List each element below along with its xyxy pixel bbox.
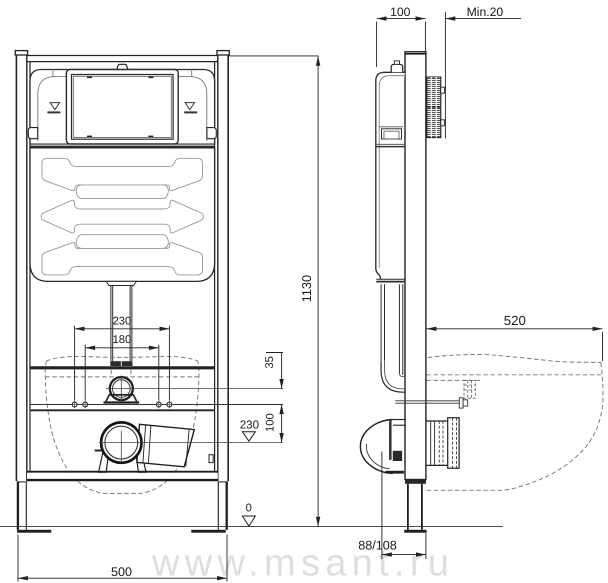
svg-text:230: 230 xyxy=(240,418,259,431)
svg-text:100: 100 xyxy=(390,5,411,19)
svg-text:0: 0 xyxy=(246,502,252,514)
svg-text:1130: 1130 xyxy=(299,275,314,303)
svg-text:www.msant.ru: www.msant.ru xyxy=(151,543,454,583)
svg-text:Min.20: Min.20 xyxy=(467,5,504,19)
svg-text:88/108: 88/108 xyxy=(358,539,397,553)
svg-text:180: 180 xyxy=(113,334,132,346)
svg-text:100: 100 xyxy=(264,413,276,432)
svg-text:230: 230 xyxy=(113,316,132,328)
svg-text:520: 520 xyxy=(504,313,526,328)
svg-text:35: 35 xyxy=(264,356,276,368)
svg-text:500: 500 xyxy=(111,565,132,579)
